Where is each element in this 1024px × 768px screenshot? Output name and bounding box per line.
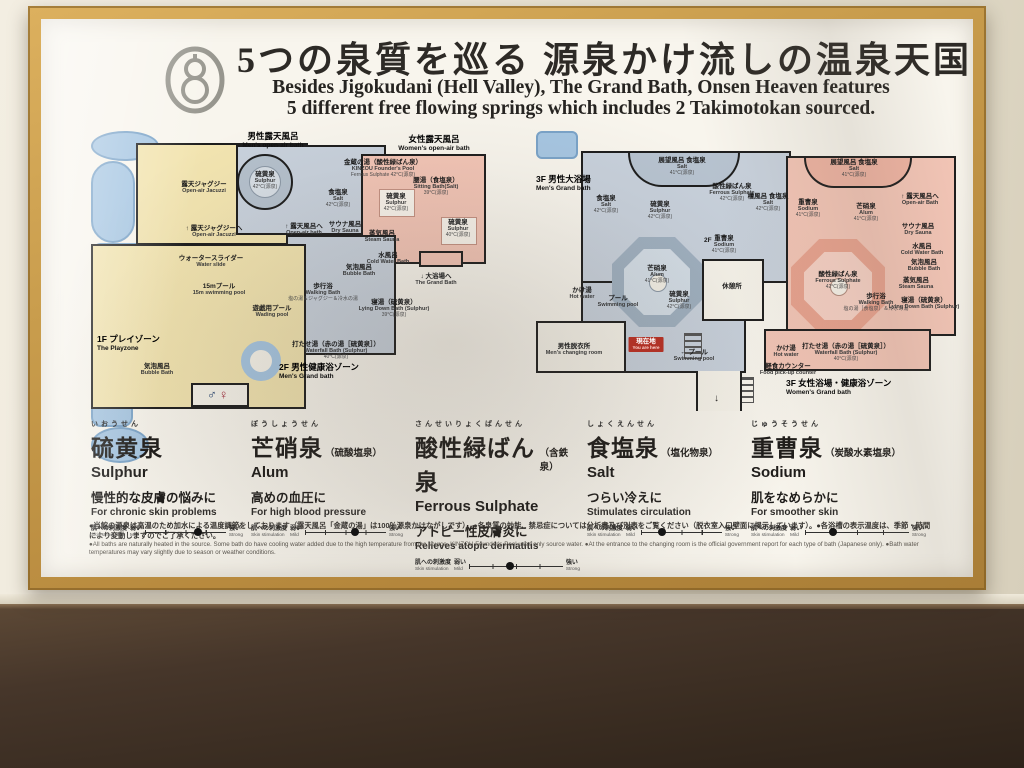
footnote-jp: ●当館の源泉は高温のため加水による温度調節をしております（露天風呂「金蔵の湯」は… (89, 521, 937, 541)
map-label: 硫黄泉Sulphur42°C(源泉) (648, 201, 673, 221)
spring-benefit-jp: 慢性的な皮膚の悩みに (91, 487, 243, 506)
scale-dot (506, 562, 514, 570)
spring-name-en: Sodium (751, 464, 926, 481)
map-label: 打たせ湯（赤の湯［硫黄泉］）Waterfall Bath (Sulphur)40… (802, 343, 890, 363)
restroom-icons: ♂♀ (207, 387, 231, 402)
map-label: 硫黄泉Sulphur42°C(源泉) (667, 291, 692, 311)
spring-name-en: Ferrous Sulphate (415, 498, 580, 515)
spring-benefit-en: Stimulates circulation (587, 507, 739, 518)
map-label: ↓ 大浴場へThe Grand Bath (415, 273, 456, 287)
map-label: 遊戯用プールWading pool (253, 305, 292, 319)
map-label: 歩行浴Walking Bath塩の湯＆ジャグジー＆冷水の湯 (288, 283, 358, 303)
spring-furigana: しょくえんせん (587, 419, 739, 429)
scale-dot (194, 528, 202, 536)
wood-counter (0, 604, 1024, 768)
map-label: 2F → (704, 237, 720, 244)
map-label: ← プールSwimming pool (674, 349, 715, 363)
map-label: 気泡風呂Bubble Bath (343, 264, 375, 278)
spring-name-jp: 芒硝泉 (251, 429, 323, 463)
spring-furigana: いおうせん (91, 419, 243, 429)
spring-benefit-jp: 高めの血圧に (251, 487, 403, 506)
map-label: 金蔵の湯（酸性緑ばん泉）KINZOU Founder's PoolFerrous… (344, 159, 422, 179)
spring-name-jp: 食塩泉 (587, 429, 659, 463)
map-label: 展望風呂 食塩泉Salt41°C(源泉) (830, 159, 877, 179)
map-label: かけ湯Hot water (773, 345, 798, 359)
map-label: 硫黄泉Sulphur42°C(源泉) (384, 193, 409, 213)
spring-benefit-en: For chronic skin problems (91, 507, 243, 518)
male-icon: ♂ (207, 387, 219, 402)
floor-map-3f: ↓ 3F 男性大浴場Men's Grand bath 展望風呂 食塩泉Salt4… (536, 131, 966, 412)
map-label: 気泡風呂Bubble Bath (908, 259, 940, 273)
stimulation-scale: 肌への刺激度Skin stimulation 弱いMild 強いStrong (415, 560, 580, 572)
map-label: サウナ風呂Dry Sauna (329, 221, 362, 235)
map-label: 檜風呂 食塩泉Salt42°C(源泉) (748, 193, 789, 213)
scale-track (469, 561, 563, 571)
zone-header: 男性露天風呂Men's open-air bath (242, 132, 303, 149)
poster-frame: 5つの泉質を巡る 源泉かけ流しの温泉天国 Besides Jigokudani … (28, 6, 986, 590)
map-label: 蒸気風呂Steam Sauna (365, 230, 400, 244)
spring-name-en: Alum (251, 464, 403, 481)
wood-counter-edge (0, 604, 1024, 609)
map-label: 寝湯（硫黄泉）Lying Down Bath (Sulphur)39°C(源泉) (359, 299, 430, 319)
female-icon: ♀ (219, 387, 231, 402)
map-label: 露天ジャグジーOpen-air Jacuzzi (181, 181, 226, 195)
spring-name-jp: 重曹泉 (751, 429, 823, 463)
map-label: 芒硝泉Alum41°C(源泉) (645, 265, 670, 285)
map-label: ↑ 露天風呂へOpen-air bath (285, 223, 323, 237)
map-label: ウォータースライダーWater slide (179, 255, 243, 269)
scale-dot (351, 528, 359, 536)
map-label: 蒸気風呂Steam Sauna (899, 277, 934, 291)
footnote-en: ●All baths are naturally heated in the s… (89, 541, 937, 558)
map-label: ↑ 露天風呂へOpen-air Bath (901, 193, 939, 207)
spring-name-suffix: （硫酸塩泉） (325, 445, 382, 459)
map-label: 歩行浴Walking Bath塩の湯［食塩泉］＆冷水の湯 (843, 293, 908, 313)
map-label: 15mプール15m swimming pool (193, 283, 246, 297)
you-are-here-badge: 現在地You are here (629, 337, 664, 352)
zone-header: 1F プレイゾーンThe Playzone (97, 335, 160, 352)
floor-map-1f-2f: ♂♀ 男性露天風呂Men's open-air bath 金蔵の湯（酸性緑ばん泉… (91, 131, 496, 412)
map-label: 重曹泉Sodium41°C(源泉) (796, 199, 821, 219)
map-label: サウナ風呂Dry Sauna (902, 223, 935, 237)
zone-header: 3F 女性浴場・健康浴ゾーンWomen's Grand bath (786, 379, 891, 396)
corridor-down (696, 371, 742, 411)
spring-name-en: Salt (587, 464, 739, 481)
pool-mens-small (536, 131, 578, 159)
page-title: 5つの泉質を巡る 源泉かけ流しの温泉天国 (237, 31, 927, 83)
map-label: 男性脱衣所Men's changing room (546, 343, 603, 357)
subtitle-line-2: 5 different free flowing springs which i… (191, 98, 971, 119)
map-label: 休憩所 (722, 283, 742, 290)
map-label: ↑ 露天ジャグジーへOpen-air Jacuzzi (186, 225, 243, 239)
bath-walking-mens (91, 161, 135, 243)
spring-name-jp: 硫黄泉 (91, 429, 163, 463)
spring-name-jp: 酸性緑ばん泉 (415, 429, 538, 497)
spring-benefit-en: For high blood pressure (251, 507, 403, 518)
map-label: 硫黄泉Sulphur42°C(源泉) (253, 171, 278, 191)
region-grandbath-link (419, 251, 463, 267)
spring-name-en: Sulphur (91, 464, 243, 481)
zone-header: 3F 男性大浴場Men's Grand bath (536, 175, 591, 192)
spring-name-suffix: （炭酸水素塩泉） (825, 445, 901, 459)
spring-benefit-en: For smoother skin (751, 507, 926, 518)
spring-name-suffix: （塩化物泉） (661, 445, 718, 459)
down-arrow-icon: ↓ (714, 393, 719, 404)
map-label: 打たせ湯（赤の湯［硫黄泉］）Waterfall Bath (Sulphur)40… (292, 341, 380, 361)
map-label: かけ湯Hot water (569, 287, 594, 301)
map-label: 食塩泉Salt42°C(源泉) (326, 189, 351, 209)
zone-header: 女性露天風呂Women's open-air bath (398, 135, 470, 152)
zone-header: 2F 男性健康浴ゾーンMen's Grand bath (279, 363, 359, 380)
map-label: 軽食カウンターFood pick-up counter (760, 363, 816, 377)
map-label: 展望風呂 食塩泉Salt41°C(源泉) (658, 157, 705, 177)
spring-furigana: じゅうそうせん (751, 419, 926, 429)
footnotes: ●当館の源泉は高温のため加水による温度調節をしております（露天風呂「金蔵の湯」は… (89, 521, 937, 557)
page-subtitle: Besides Jigokudani (Hell Valley), The Gr… (191, 77, 971, 119)
map-label: 気泡風呂Bubble Bath (141, 363, 173, 377)
scale-dot (658, 528, 666, 536)
map-label: 水風呂Cold Water Bath (901, 243, 944, 257)
onsen-map-poster: 5つの泉質を巡る 源泉かけ流しの温泉天国 Besides Jigokudani … (41, 19, 973, 577)
spring-benefit-jp: 肌をなめらかに (751, 487, 926, 506)
map-label: 硫黄泉Sulphur40°C(源泉) (446, 219, 471, 239)
spring-benefit-jp: つらい冷えに (587, 487, 739, 506)
spring-furigana: さんせいりょくばんせん (415, 419, 580, 429)
map-label: プールSwimming pool (598, 295, 639, 309)
scale-dot (829, 528, 837, 536)
map-label: 腰湯（食塩泉）Sitting Bath(Salt)39°C(源泉) (413, 177, 459, 197)
spring-furigana: ぼうしょうせん (251, 419, 403, 429)
subtitle-line-1: Besides Jigokudani (Hell Valley), The Gr… (191, 77, 971, 98)
map-label: 食塩泉Salt42°C(源泉) (594, 195, 619, 215)
map-label: 酸性緑ばん泉Ferrous Sulphate42°C(源泉) (815, 271, 860, 291)
spring-name-suffix: （含鉄泉） (540, 445, 580, 473)
map-label: 芒硝泉Alum41°C(源泉) (854, 203, 879, 223)
pool-waterslide-ring (241, 341, 281, 381)
